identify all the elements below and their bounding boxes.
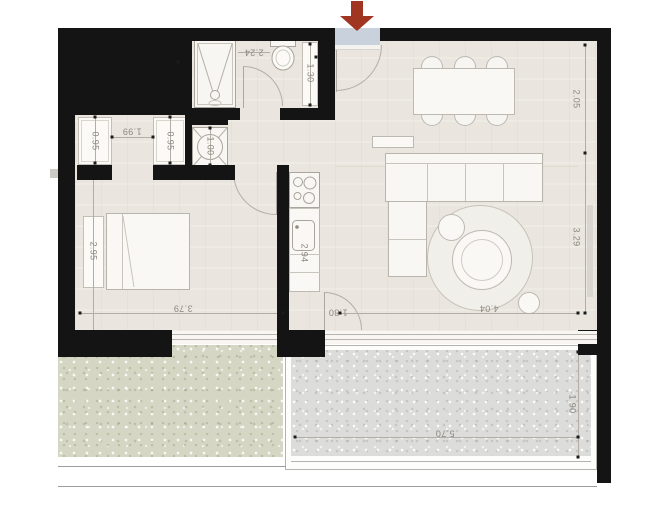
- dimension-dot: [169, 116, 172, 119]
- dimension-dot: [177, 61, 180, 64]
- wall-segment: [380, 28, 611, 41]
- dim-label-laundry-width: 1.00: [206, 136, 215, 155]
- shower-icon: [194, 40, 236, 108]
- dimension-dot: [282, 312, 285, 315]
- dimension-dot: [209, 164, 212, 167]
- counter-joint: [289, 208, 320, 209]
- wall-segment: [58, 28, 192, 115]
- dim-label-living-right-upper: 2.05: [572, 89, 581, 108]
- dimension-dot: [577, 436, 580, 439]
- dimension-dot: [309, 104, 312, 107]
- terrace-edge-line: [291, 461, 591, 462]
- wall-segment: [597, 40, 611, 355]
- entrance-arrow-icon: [337, 1, 377, 31]
- dim-label-living-width: 4.04: [479, 304, 498, 313]
- dimension-dot: [584, 44, 587, 47]
- toilet-icon: [269, 40, 299, 72]
- dim-label-bath-width: 2.24: [244, 48, 263, 57]
- dimension-dot: [577, 351, 580, 354]
- dimension-dot: [169, 162, 172, 165]
- dimension-dot: [577, 456, 580, 459]
- boundary-line: [58, 486, 597, 487]
- dimension-dot: [79, 312, 82, 315]
- side-window-glazing: [587, 205, 593, 297]
- vanity-handle-dot: [315, 56, 318, 59]
- dimension-dot: [111, 136, 114, 139]
- side-table: [518, 292, 540, 314]
- dining-table: [413, 68, 515, 115]
- dim-label-terrace-door: 1.80: [328, 308, 347, 317]
- wall-segment: [185, 108, 228, 125]
- wall-segment: [318, 40, 335, 108]
- wall-segment: [58, 28, 75, 357]
- dim-label-bath-depth: 1.30: [306, 63, 315, 82]
- dim-label-bedroom-depth: 2.95: [89, 241, 98, 260]
- dim-label-terrace-depth: 1.90: [568, 394, 577, 413]
- dimension-line: [112, 137, 153, 138]
- counter-joint: [289, 272, 320, 273]
- dimension-dot: [584, 152, 587, 155]
- wall-segment: [277, 165, 289, 330]
- garden-grass: [58, 345, 283, 457]
- bedroom-window: [172, 331, 277, 344]
- wall-segment: [153, 165, 235, 180]
- wall-segment: [277, 330, 325, 357]
- wall-segment: [77, 165, 112, 180]
- dim-label-niche-opening: 1.99: [122, 127, 141, 136]
- dimension-dot: [94, 162, 97, 165]
- dim-label-niche-right: 0.95: [166, 131, 175, 150]
- bed-icon: [106, 213, 190, 290]
- dimension-dot: [577, 312, 580, 315]
- dimension-dot: [309, 43, 312, 46]
- dim-label-niche-left: 0.95: [91, 131, 100, 150]
- wall-tick: [50, 169, 58, 178]
- living-room-glass-front: [325, 331, 597, 344]
- dim-label-living-right-lower: 3.29: [572, 227, 581, 246]
- dimension-line: [585, 45, 586, 313]
- sofa-icon: [385, 153, 543, 277]
- dimension-dot: [584, 312, 587, 315]
- wall-segment: [192, 28, 335, 41]
- wall-segment: [58, 330, 172, 357]
- entrance-threshold: [335, 45, 380, 50]
- dimension-line: [578, 352, 579, 457]
- dimension-dot: [209, 127, 212, 130]
- dimension-dot: [94, 116, 97, 119]
- terrace-concrete: [291, 350, 591, 456]
- cooktop-icon: [289, 172, 320, 208]
- dimension-line: [340, 313, 578, 314]
- dimension-dot: [294, 436, 297, 439]
- dim-label-kitchen-run: 2.94: [300, 243, 309, 262]
- console-shelf: [372, 136, 414, 148]
- floor-plan: 2.24 1.30 0.95 1.99 0.95 1.00 2.95 2.94 …: [0, 0, 669, 518]
- dimension-dot: [152, 136, 155, 139]
- dim-label-terrace-width: 5.70: [435, 429, 454, 438]
- dim-label-bedroom-width: 3.79: [173, 304, 192, 313]
- wall-segment: [597, 355, 611, 483]
- boundary-line: [58, 466, 286, 467]
- wall-segment: [280, 108, 335, 120]
